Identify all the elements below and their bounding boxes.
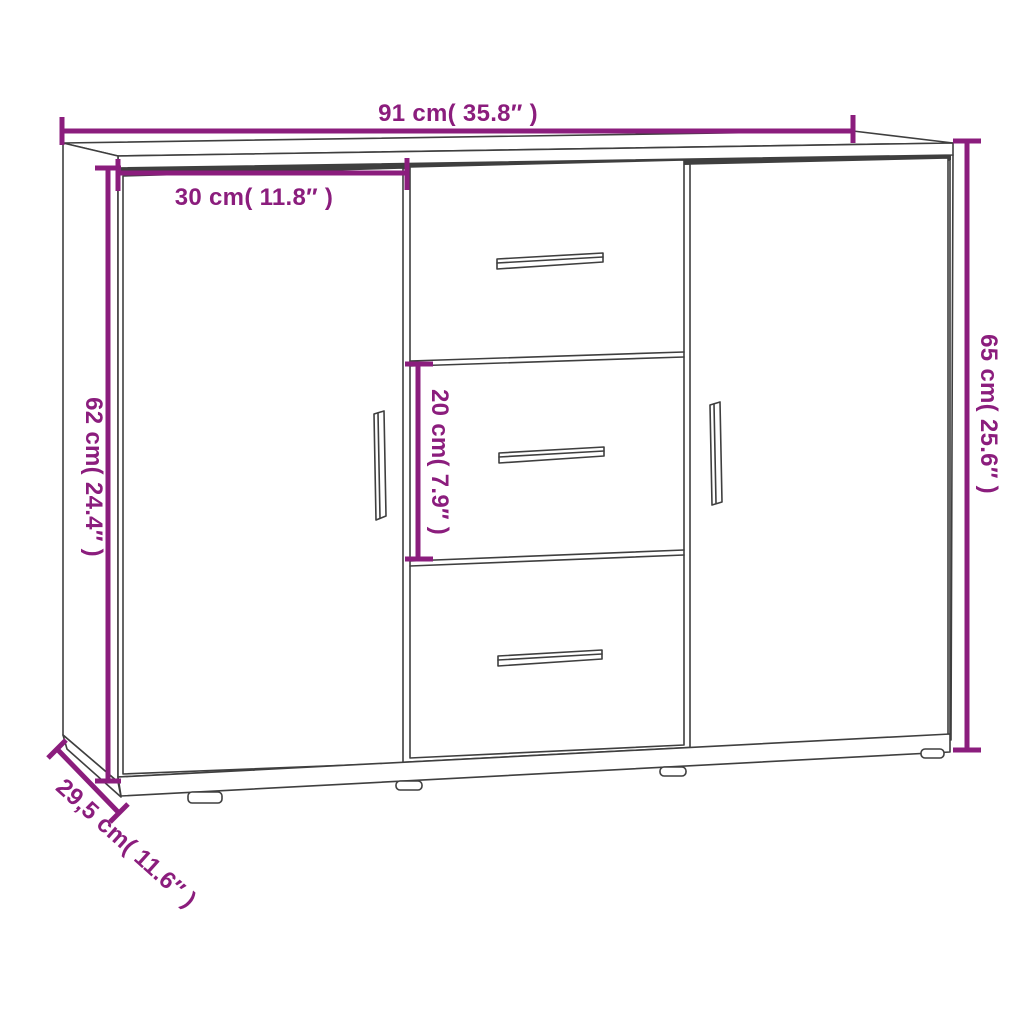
- cabinet-right-edge: [951, 155, 953, 740]
- drawer-height-label: 20 cm( 7.9″ ): [426, 389, 453, 535]
- overall-height-label: 65 cm( 25.6″ ): [975, 334, 1002, 494]
- foot-2: [396, 781, 422, 790]
- foot-4: [921, 749, 944, 758]
- foot-1: [188, 792, 222, 803]
- foot-3: [660, 767, 686, 776]
- dimension-diagram: 91 cm( 35.8″ ) 30 cm( 11.8″ ) 62 cm( 24.…: [0, 0, 1024, 1024]
- overall-width-label: 91 cm( 35.8″ ): [378, 100, 538, 127]
- left-door: [123, 168, 403, 774]
- cabinet-drawing: [63, 131, 953, 803]
- door-height-label: 62 cm( 24.4″ ): [80, 397, 107, 557]
- door-width-label: 30 cm( 11.8″ ): [175, 184, 333, 211]
- sideboard-diagram-canvas: 91 cm( 35.8″ ) 30 cm( 11.8″ ) 62 cm( 24.…: [0, 0, 1024, 1024]
- right-door: [690, 158, 948, 748]
